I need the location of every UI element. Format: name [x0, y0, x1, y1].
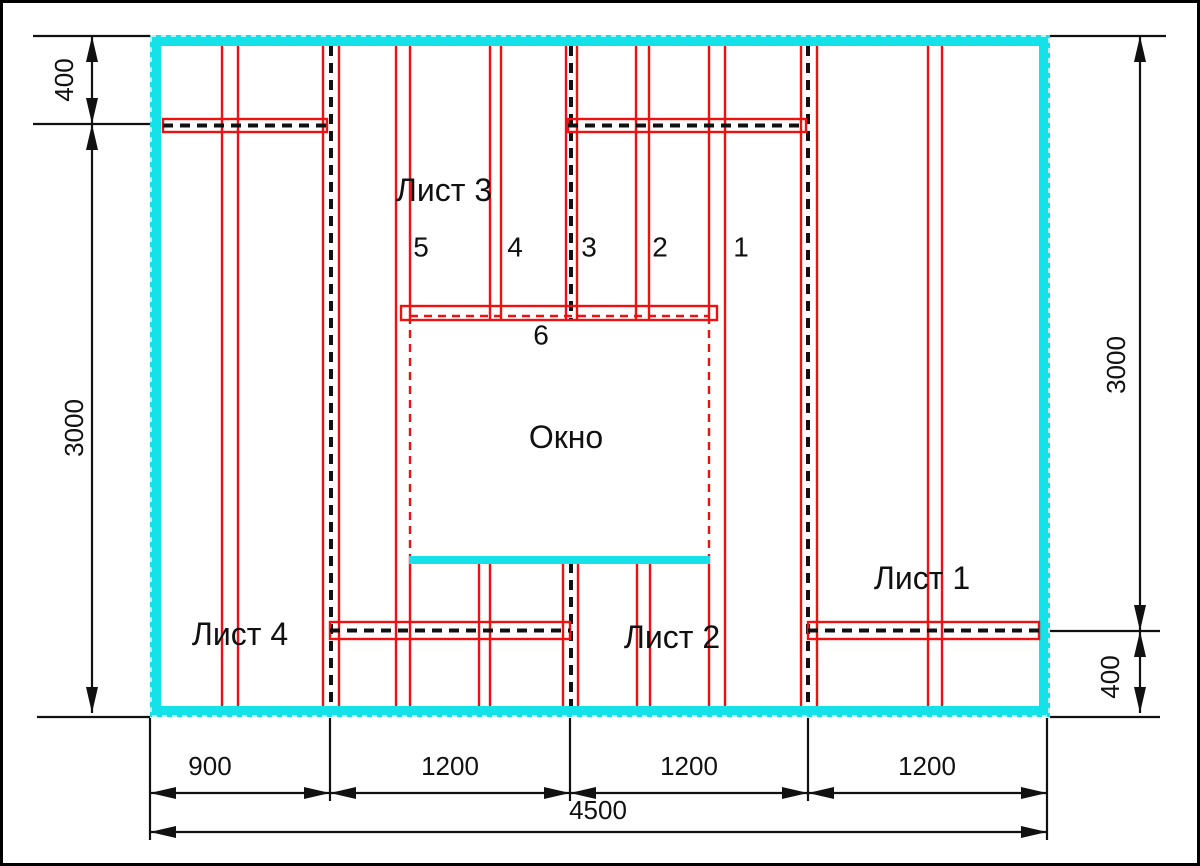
drawing-page: Лист 3Лист 4Лист 2Лист 1Окно543216400300… — [0, 0, 1200, 866]
stud-number: 1 — [733, 232, 749, 263]
dim-label-bottom: 1200 — [898, 751, 956, 781]
sheet-label: Лист 3 — [396, 172, 492, 208]
dim-label-total: 4500 — [569, 795, 627, 825]
dim-label-bottom: 900 — [188, 751, 231, 781]
stud-number: 5 — [413, 232, 429, 263]
dim-label-right: 400 — [1095, 655, 1125, 698]
sheet-label: Лист 4 — [192, 616, 288, 652]
stud-number: 4 — [507, 232, 523, 263]
window-label: Окно — [529, 419, 603, 455]
stud-number: 3 — [581, 232, 597, 263]
dim-label-right: 3000 — [1101, 336, 1131, 394]
dim-label-bottom: 1200 — [660, 751, 718, 781]
sheet-label: Лист 1 — [874, 560, 970, 596]
stud-number: 6 — [533, 320, 549, 351]
dim-label-left: 400 — [49, 58, 79, 101]
dim-label-bottom: 1200 — [421, 751, 479, 781]
stud-number: 2 — [652, 232, 668, 263]
framing-diagram: Лист 3Лист 4Лист 2Лист 1Окно543216400300… — [0, 0, 1200, 866]
sheet-label: Лист 2 — [624, 619, 720, 655]
window-sill — [409, 556, 710, 564]
dim-label-left: 3000 — [59, 399, 89, 457]
